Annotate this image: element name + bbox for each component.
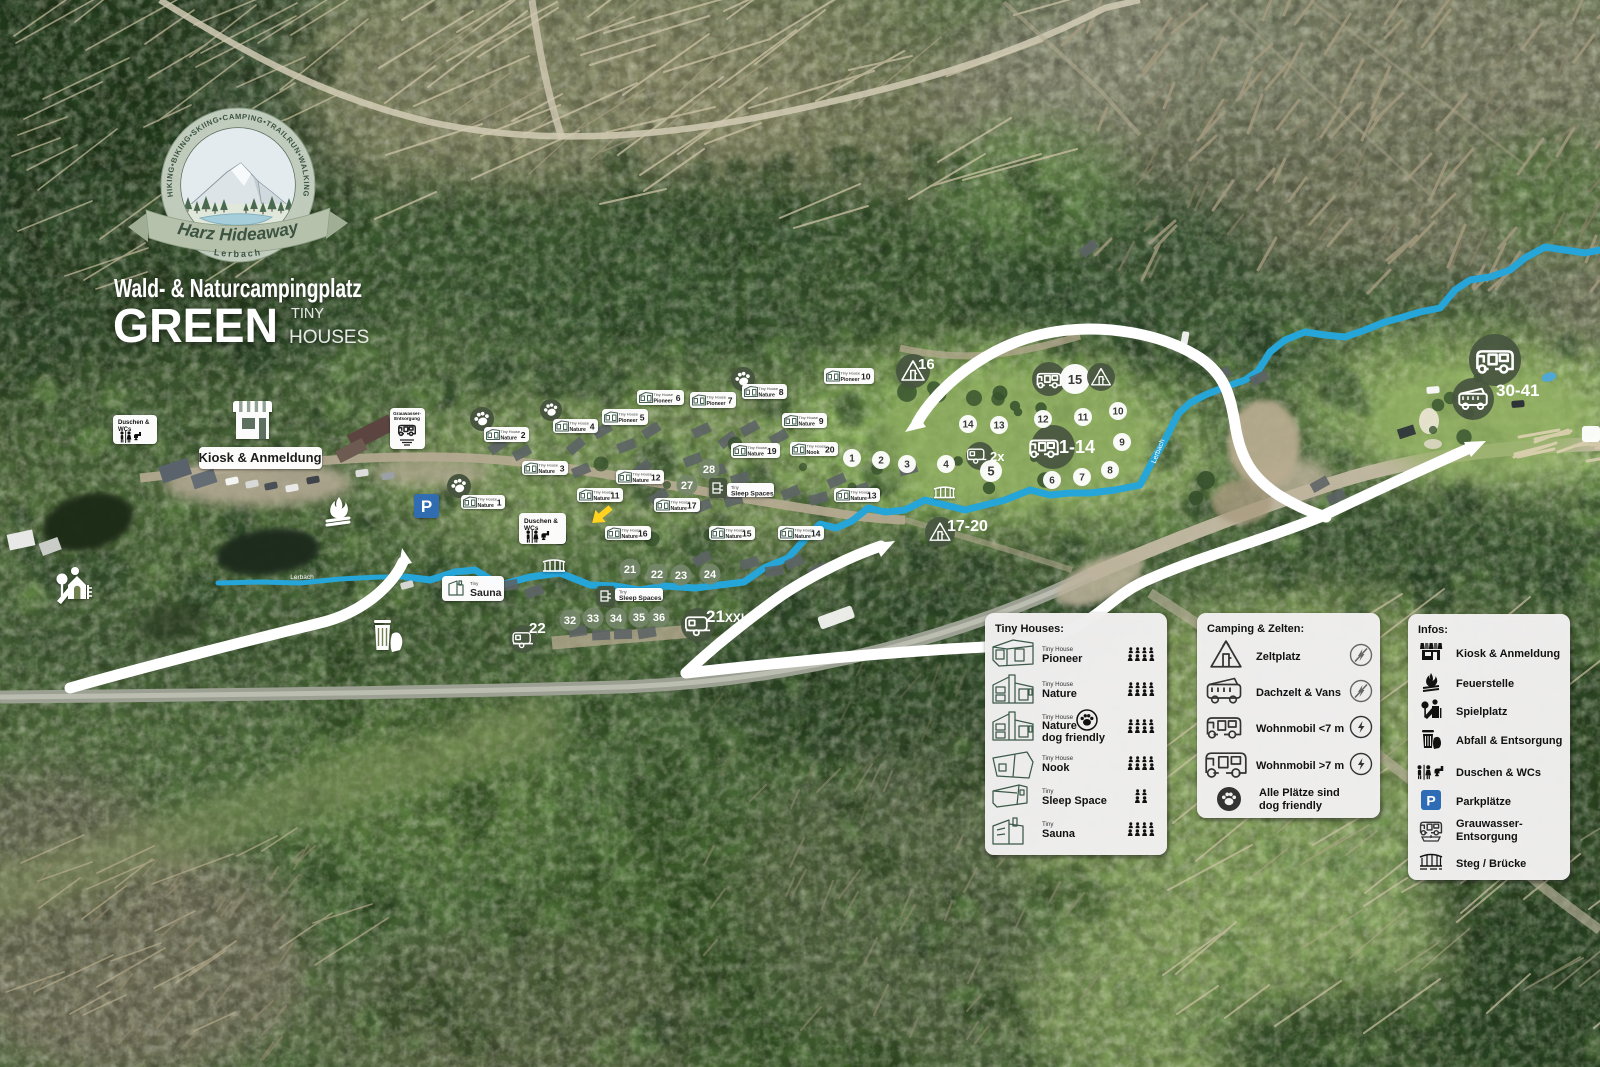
svg-text:Nook: Nook (1042, 762, 1070, 774)
svg-text:4: 4 (943, 460, 949, 471)
svg-text:9: 9 (1119, 438, 1125, 449)
svg-text:28: 28 (703, 464, 715, 476)
svg-text:23: 23 (675, 570, 687, 582)
svg-text:Steg / Brücke: Steg / Brücke (1456, 858, 1526, 870)
svg-text:dog friendly: dog friendly (1259, 800, 1323, 812)
svg-text:19: 19 (767, 446, 777, 456)
svg-text:Tiny House: Tiny House (539, 463, 559, 468)
svg-text:6: 6 (676, 393, 681, 403)
svg-text:Pioneer: Pioneer (654, 399, 673, 405)
svg-text:Spielplatz: Spielplatz (1456, 706, 1508, 718)
svg-text:17: 17 (687, 501, 697, 511)
svg-text:20: 20 (825, 445, 835, 455)
svg-text:Tiny House: Tiny House (759, 386, 779, 391)
svg-text:Parkplätze: Parkplätze (1456, 796, 1511, 808)
svg-text:8: 8 (779, 387, 784, 397)
svg-text:Lerbach: Lerbach (290, 574, 314, 581)
svg-text:Nature: Nature (671, 506, 688, 512)
svg-text:Tiny House: Tiny House (748, 445, 768, 450)
svg-text:16: 16 (918, 356, 935, 373)
svg-text:Sauna: Sauna (1042, 828, 1076, 840)
svg-text:1-14: 1-14 (1059, 437, 1095, 457)
svg-text:Pioneer: Pioneer (841, 377, 860, 383)
svg-text:Tiny House: Tiny House (633, 472, 653, 477)
svg-text:1: 1 (497, 498, 502, 508)
svg-text:Nature: Nature (501, 436, 518, 442)
svg-text:3: 3 (560, 464, 565, 474)
svg-text:Tiny House: Tiny House (799, 415, 819, 420)
svg-text:Sleep Spaces: Sleep Spaces (731, 491, 774, 498)
svg-text:Tiny: Tiny (731, 485, 740, 490)
svg-text:GREEN: GREEN (113, 300, 278, 353)
svg-text:6: 6 (1049, 476, 1055, 487)
svg-text:TINY: TINY (291, 306, 324, 322)
svg-text:Grauwasser-: Grauwasser- (1456, 818, 1523, 830)
svg-text:Tiny Houses:: Tiny Houses: (995, 623, 1064, 635)
svg-text:Duschen &: Duschen & (524, 518, 558, 525)
svg-text:13: 13 (993, 421, 1005, 432)
svg-text:Wohnmobil <7 m: Wohnmobil <7 m (1256, 723, 1344, 735)
svg-text:Nature: Nature (633, 478, 650, 484)
svg-text:Tiny House: Tiny House (478, 497, 498, 502)
svg-text:Nature: Nature (622, 534, 639, 540)
svg-text:Nook: Nook (807, 450, 820, 456)
svg-text:3: 3 (904, 460, 910, 471)
svg-text:11: 11 (610, 491, 619, 501)
svg-text:15: 15 (742, 529, 752, 539)
svg-text:Feuerstelle: Feuerstelle (1456, 678, 1514, 690)
svg-text:Kiosk & Anmeldung: Kiosk & Anmeldung (198, 450, 321, 465)
svg-text:27: 27 (681, 480, 693, 492)
svg-text:24: 24 (704, 569, 717, 581)
svg-text:Tiny: Tiny (619, 590, 628, 595)
svg-text:Tiny House: Tiny House (654, 392, 674, 397)
svg-text:Tiny House: Tiny House (841, 371, 861, 376)
svg-text:Tiny House: Tiny House (1042, 681, 1074, 688)
svg-text:Tiny: Tiny (1042, 788, 1054, 795)
svg-text:Tiny House: Tiny House (1042, 755, 1074, 762)
svg-text:14: 14 (811, 529, 821, 539)
svg-text:Tiny House: Tiny House (570, 421, 590, 426)
svg-text:Nature: Nature (748, 452, 765, 458)
svg-text:17-20: 17-20 (947, 518, 988, 535)
svg-text:Nature: Nature (795, 534, 812, 540)
svg-text:Abfall & Entsorgung: Abfall & Entsorgung (1456, 735, 1562, 747)
svg-text:5: 5 (640, 413, 645, 423)
svg-text:13: 13 (867, 491, 877, 501)
svg-text:35: 35 (633, 612, 645, 624)
svg-text:Pioneer: Pioneer (1042, 653, 1083, 665)
svg-text:Pioneer: Pioneer (619, 418, 638, 424)
svg-text:Tiny: Tiny (470, 581, 479, 586)
svg-text:Nature: Nature (759, 393, 776, 399)
svg-text:9: 9 (819, 416, 824, 426)
svg-text:Kiosk & Anmeldung: Kiosk & Anmeldung (1456, 648, 1560, 660)
svg-text:Sleep Space: Sleep Space (1042, 795, 1107, 807)
svg-text:12: 12 (1037, 415, 1049, 426)
svg-text:Tiny House: Tiny House (807, 444, 827, 449)
svg-text:Camping & Zelten:: Camping & Zelten: (1207, 623, 1304, 635)
svg-text:Nature: Nature (851, 496, 868, 502)
svg-text:dog friendly: dog friendly (1042, 732, 1106, 744)
svg-text:Zeltplatz: Zeltplatz (1256, 651, 1301, 663)
svg-text:34: 34 (610, 613, 623, 625)
svg-text:Infos:: Infos: (1418, 624, 1448, 636)
svg-text:21: 21 (624, 564, 636, 576)
svg-text:2: 2 (878, 456, 884, 467)
svg-text:Duschen & WCs: Duschen & WCs (1456, 767, 1541, 779)
svg-text:Dachzelt & Vans: Dachzelt & Vans (1256, 687, 1341, 699)
svg-text:Entsorgung: Entsorgung (394, 416, 420, 421)
svg-text:P: P (421, 497, 432, 516)
svg-text:5: 5 (987, 464, 994, 479)
svg-text:Wald- & Naturcampingplatz: Wald- & Naturcampingplatz (114, 273, 362, 303)
svg-text:Nature: Nature (799, 422, 816, 428)
svg-text:Tiny House: Tiny House (1042, 646, 1074, 653)
svg-text:Nature: Nature (594, 496, 611, 502)
svg-text:Nature: Nature (726, 534, 743, 540)
svg-text:8: 8 (1107, 466, 1113, 477)
svg-text:22: 22 (529, 620, 546, 637)
svg-text:33: 33 (587, 613, 599, 625)
svg-text:16: 16 (638, 529, 648, 539)
svg-text:Alle Plätze sind: Alle Plätze sind (1259, 787, 1340, 799)
svg-text:Nature: Nature (570, 427, 587, 433)
svg-text:32: 32 (564, 615, 576, 627)
svg-text:Nature: Nature (478, 503, 495, 509)
svg-text:Entsorgung: Entsorgung (1456, 831, 1518, 843)
svg-text:12: 12 (651, 473, 661, 483)
svg-text:36: 36 (653, 612, 665, 624)
svg-text:14: 14 (962, 420, 974, 431)
svg-text:4: 4 (590, 422, 595, 432)
svg-text:Tiny House: Tiny House (619, 412, 639, 417)
svg-text:1: 1 (849, 454, 855, 465)
svg-text:22: 22 (651, 569, 663, 581)
svg-text:2: 2 (521, 430, 526, 440)
svg-text:Nature: Nature (1042, 720, 1077, 732)
svg-text:HOUSES: HOUSES (289, 327, 369, 348)
svg-text:11: 11 (1078, 413, 1089, 424)
svg-text:7: 7 (1079, 473, 1085, 484)
svg-text:7: 7 (728, 396, 733, 406)
svg-text:Nature: Nature (1042, 688, 1077, 700)
svg-text:Pioneer: Pioneer (707, 401, 726, 407)
svg-text:P: P (1426, 793, 1435, 809)
svg-text:Tiny House: Tiny House (707, 395, 727, 400)
svg-text:Sleep Spaces: Sleep Spaces (619, 595, 662, 602)
svg-text:30-41: 30-41 (1496, 381, 1539, 400)
svg-text:Sauna: Sauna (470, 587, 502, 599)
svg-text:Tiny House: Tiny House (501, 429, 521, 434)
svg-text:Wohnmobil >7 m: Wohnmobil >7 m (1256, 760, 1344, 772)
svg-text:Duschen &: Duschen & (118, 420, 150, 426)
svg-text:10: 10 (861, 372, 871, 382)
svg-text:10: 10 (1112, 407, 1124, 418)
svg-text:Tiny: Tiny (1042, 821, 1054, 828)
svg-text:Nature: Nature (539, 469, 556, 475)
svg-text:15: 15 (1068, 372, 1082, 387)
